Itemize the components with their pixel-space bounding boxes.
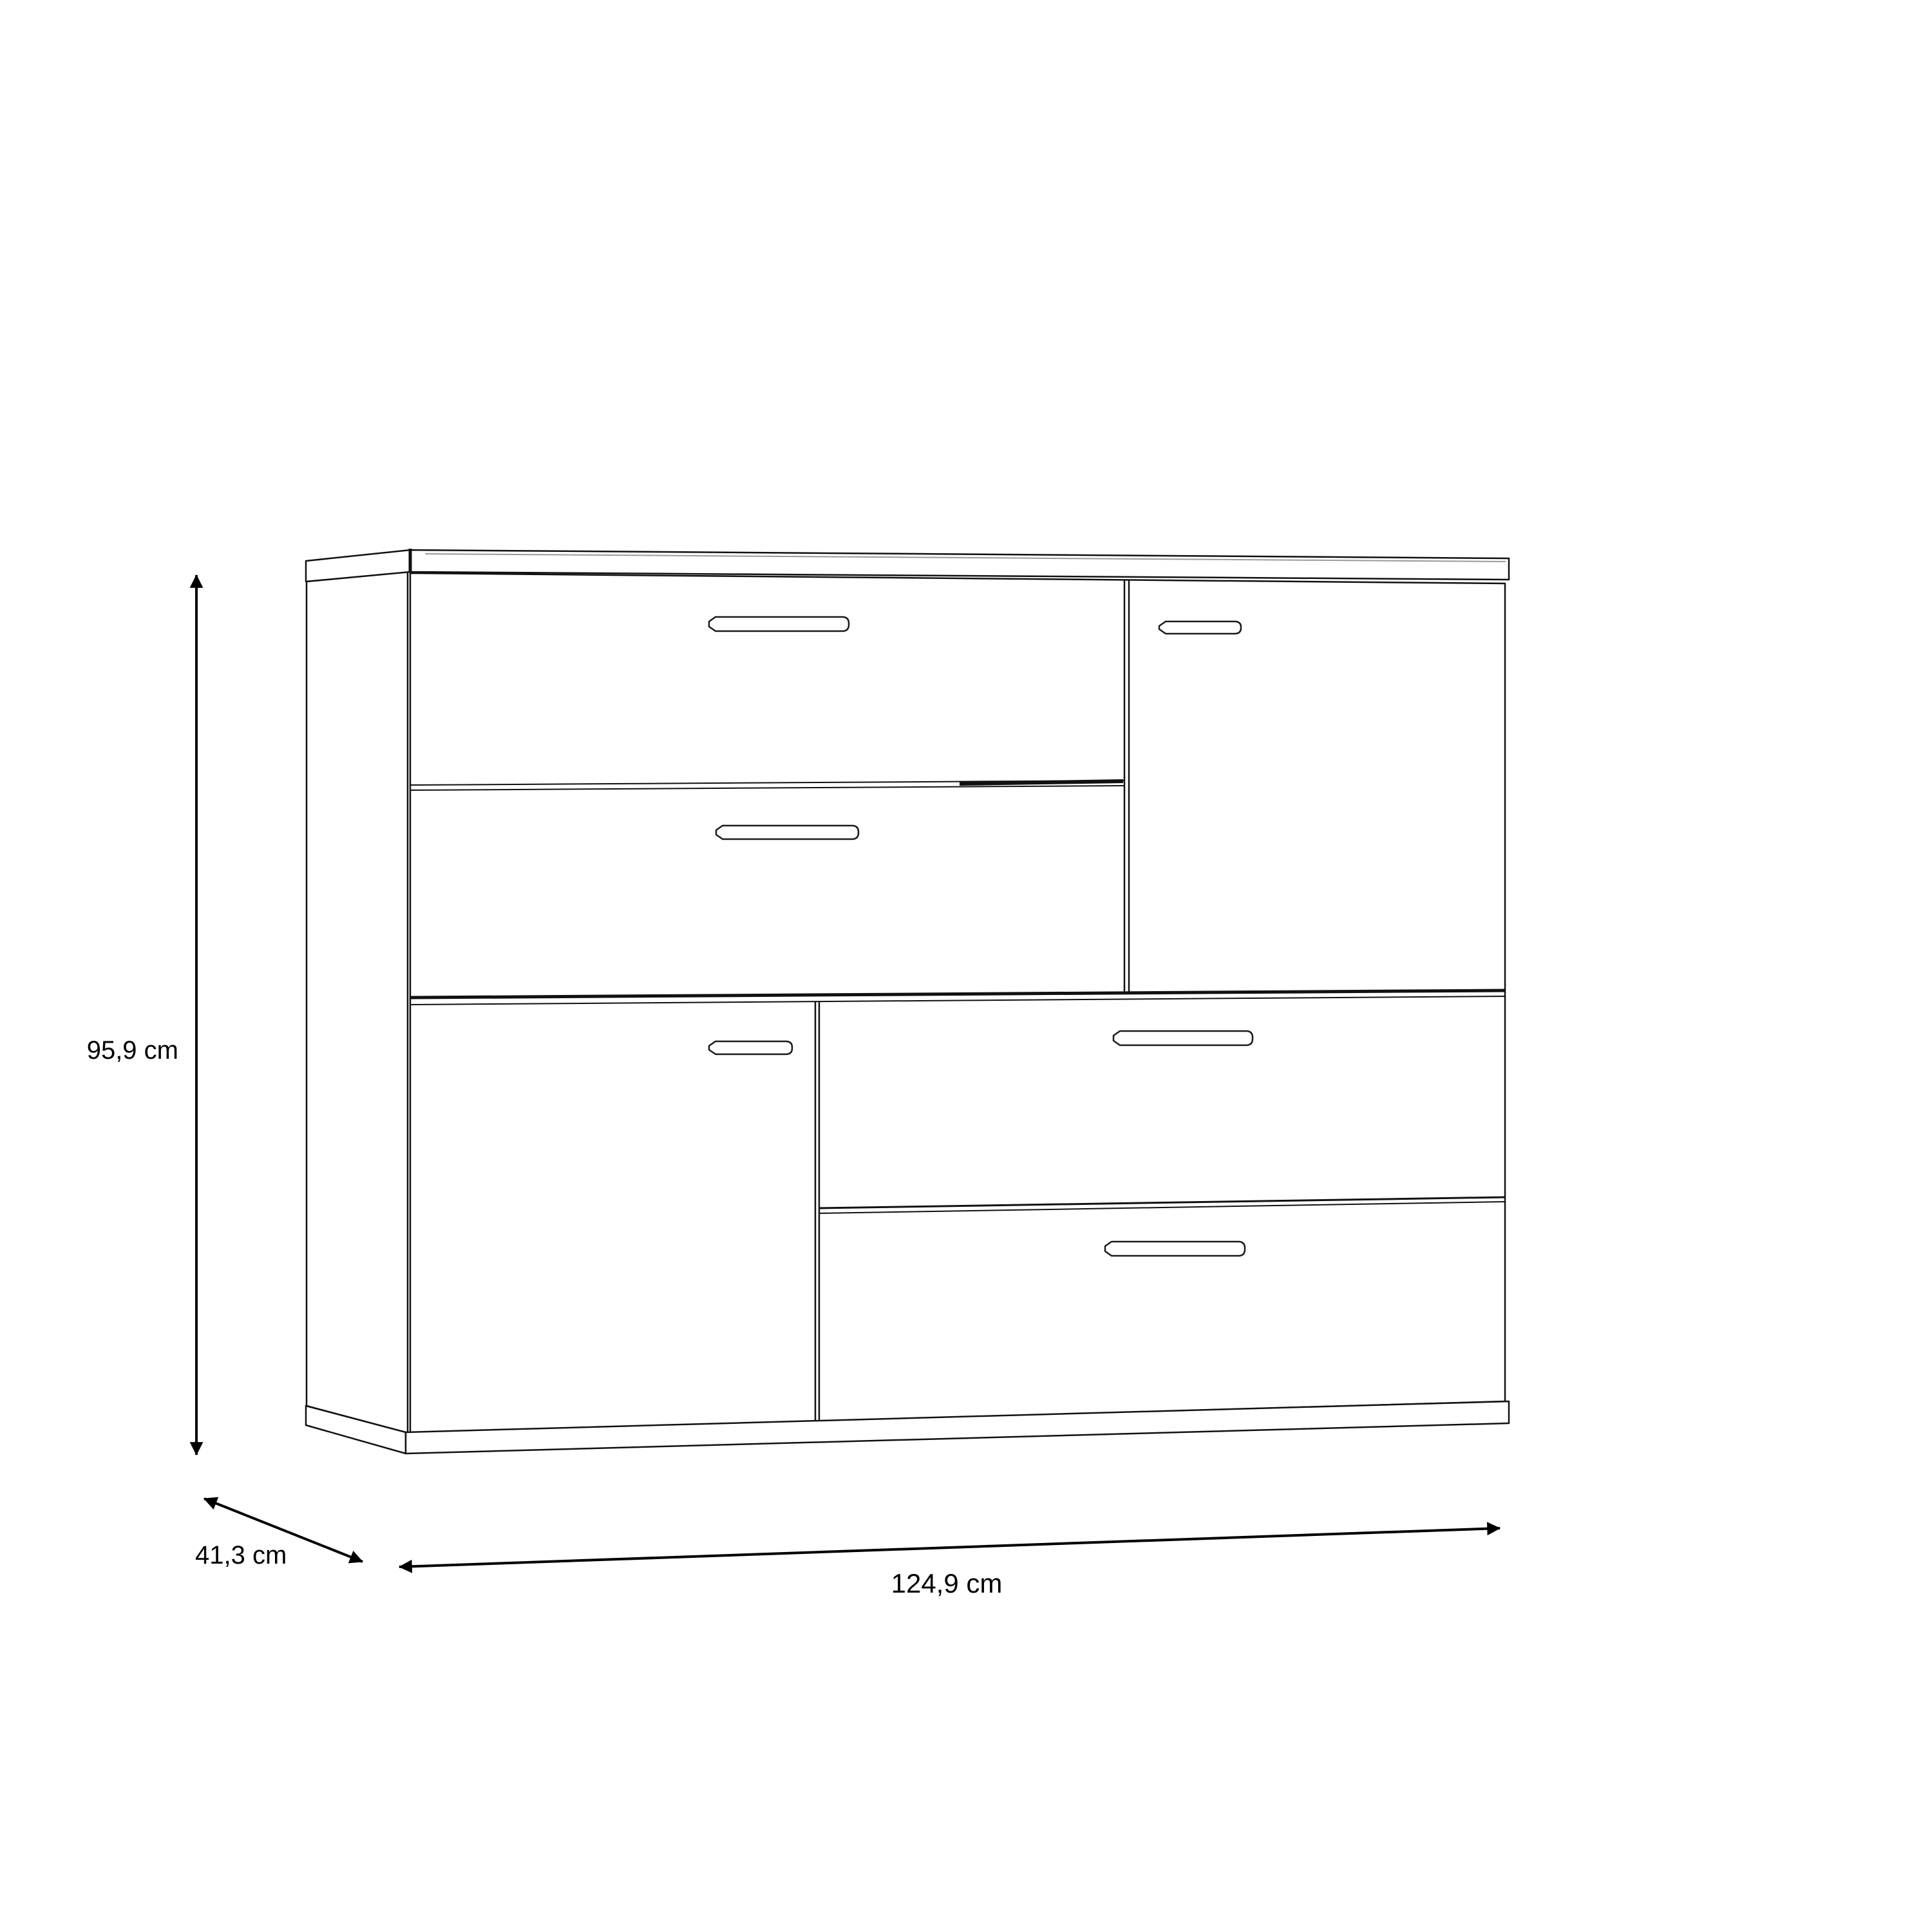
drawer-2-handle xyxy=(716,826,858,839)
height-label: 95,9 cm xyxy=(87,1036,178,1065)
cabinet-drawing xyxy=(306,549,1509,1454)
width-label: 124,9 cm xyxy=(891,1568,1003,1598)
furniture-dimension-diagram: 95,9 cm 41,3 cm 124,9 cm xyxy=(0,0,1932,1932)
drawer-3-handle xyxy=(1113,1031,1253,1045)
depth-label: 41,3 cm xyxy=(195,1541,287,1569)
door-top-right-handle xyxy=(1159,621,1241,634)
drawer-4-handle xyxy=(1105,1242,1245,1256)
drawer-1-handle xyxy=(709,617,849,631)
door-bottom-left-handle xyxy=(709,1041,792,1054)
side-panel xyxy=(307,572,408,1433)
